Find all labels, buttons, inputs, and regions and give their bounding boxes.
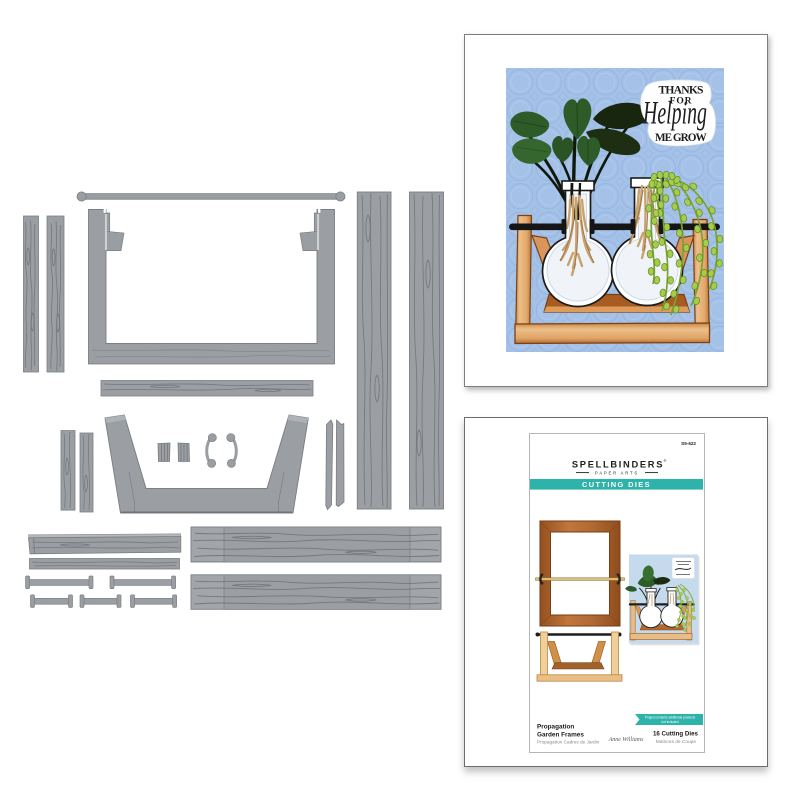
- svg-text:S5-622: S5-622: [681, 441, 696, 446]
- svg-text:PAPER ARTS: PAPER ARTS: [595, 470, 639, 475]
- svg-text:Helping: Helping: [642, 96, 707, 132]
- svg-text:®: ®: [664, 459, 667, 463]
- svg-text:16 Cutting Dies: 16 Cutting Dies: [653, 731, 699, 738]
- svg-text:Garden Frames: Garden Frames: [537, 732, 584, 739]
- svg-text:SPELLBINDERS: SPELLBINDERS: [572, 460, 664, 470]
- svg-text:ME GROW: ME GROW: [655, 132, 708, 144]
- svg-text:Matrices de Coupe: Matrices de Coupe: [656, 739, 697, 745]
- svg-text:Propagation Cadres de Jardin: Propagation Cadres de Jardin: [537, 740, 600, 745]
- svg-text:not included: not included: [661, 720, 678, 724]
- svg-text:Anne Williams: Anne Williams: [608, 737, 644, 743]
- svg-text:Propagation: Propagation: [537, 724, 574, 731]
- svg-text:CUTTING DIES: CUTTING DIES: [582, 480, 651, 489]
